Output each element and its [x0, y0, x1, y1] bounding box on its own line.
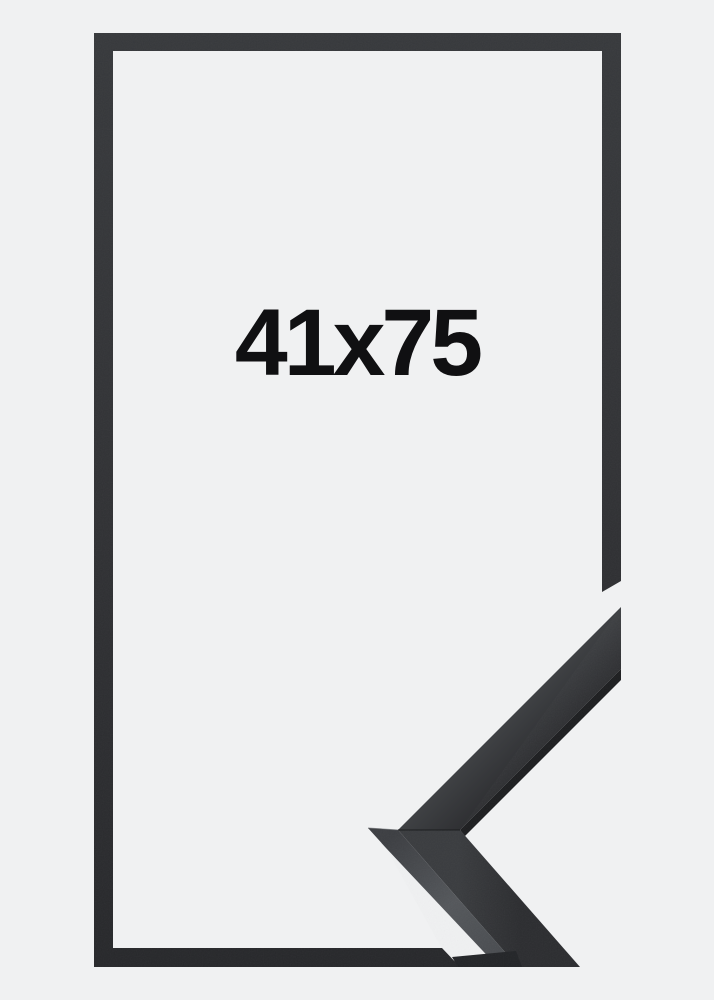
- corner-sample-upper-arm-face: [398, 607, 621, 830]
- frame-render: [0, 0, 714, 1000]
- size-label: 41x75: [0, 296, 714, 391]
- product-image: 41x75: [0, 0, 714, 1000]
- frame-outline-shape: [94, 33, 621, 967]
- grain-texture: [0, 0, 714, 1000]
